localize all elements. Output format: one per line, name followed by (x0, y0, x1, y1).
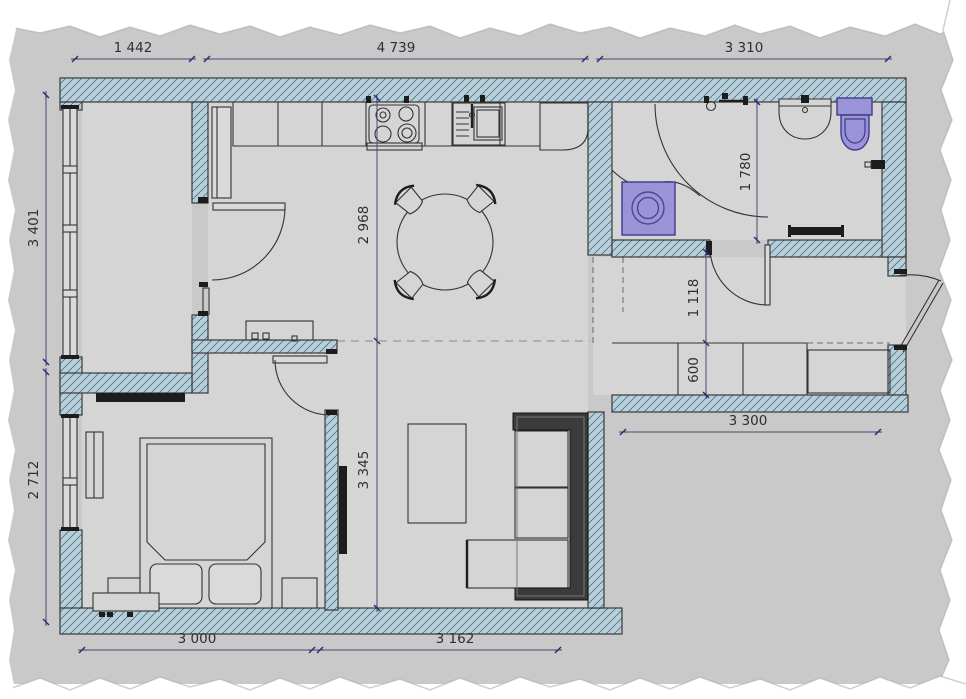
dim-label-wardrobe-depth: 600 (686, 357, 702, 383)
wall-entrance-stub-bottom (888, 345, 906, 395)
window-bedroom (61, 414, 79, 531)
dim-label-hall-length: 3 300 (729, 413, 768, 429)
wall-left-bottom-pier (60, 530, 82, 610)
dining-area (391, 181, 499, 303)
windows (61, 105, 79, 531)
tall-cabinet (212, 107, 231, 198)
dim-label-top-2: 4 739 (377, 40, 416, 56)
wall-right-top (882, 102, 906, 257)
dim-label-living-height: 3 345 (356, 451, 372, 490)
floor-plan-canvas: 1 442 4 739 3 310 3 401 2 712 3 000 3 16… (0, 0, 966, 699)
window-top-left-room (61, 105, 79, 359)
floor-plan-page: 1 442 4 739 3 310 3 401 2 712 3 000 3 16… (0, 0, 966, 699)
wall-kitchen-bath-divider (588, 102, 612, 255)
dim-label-left-2: 2 712 (26, 461, 42, 500)
bench (93, 593, 159, 611)
dim-label-bathroom-depth: 1 780 (738, 153, 754, 192)
wall-bottom (60, 608, 622, 634)
pillow (209, 564, 261, 604)
room-floor-hallway (593, 257, 906, 395)
tv (339, 466, 347, 554)
wall-living-right (588, 412, 604, 608)
double-bed (140, 438, 272, 608)
wall-topleftroom-right-lower (192, 315, 208, 393)
wall-wardrobe-bottom (612, 395, 908, 412)
dim-label-dining-height: 2 968 (356, 206, 372, 245)
dim-label-bottom-1: 3 000 (178, 631, 217, 647)
bedroom-wardrobe-bar (96, 393, 185, 402)
dim-label-hall-width: 1 118 (686, 279, 702, 318)
dim-label-bottom-2: 3 162 (436, 631, 475, 647)
dresser (246, 321, 313, 340)
dim-label-top-3: 3 310 (725, 40, 764, 56)
dim-label-left-1: 3 401 (26, 209, 42, 248)
nightstand-left (108, 578, 140, 593)
wall-bath-bottom-left (612, 240, 710, 257)
room-floor-top-left-room (82, 102, 192, 373)
wall-bedroom-living-divider (325, 410, 338, 610)
wall-topleftroom-right-upper (192, 102, 208, 203)
wall-topleftroom-bottom (60, 373, 192, 393)
dim-label-top-1: 1 442 (114, 40, 153, 56)
nightstand-right (282, 578, 317, 608)
wall-bedroom-top (192, 340, 337, 353)
washbasin (779, 95, 831, 139)
washing-machine (622, 182, 675, 235)
coffee-table (408, 424, 466, 523)
